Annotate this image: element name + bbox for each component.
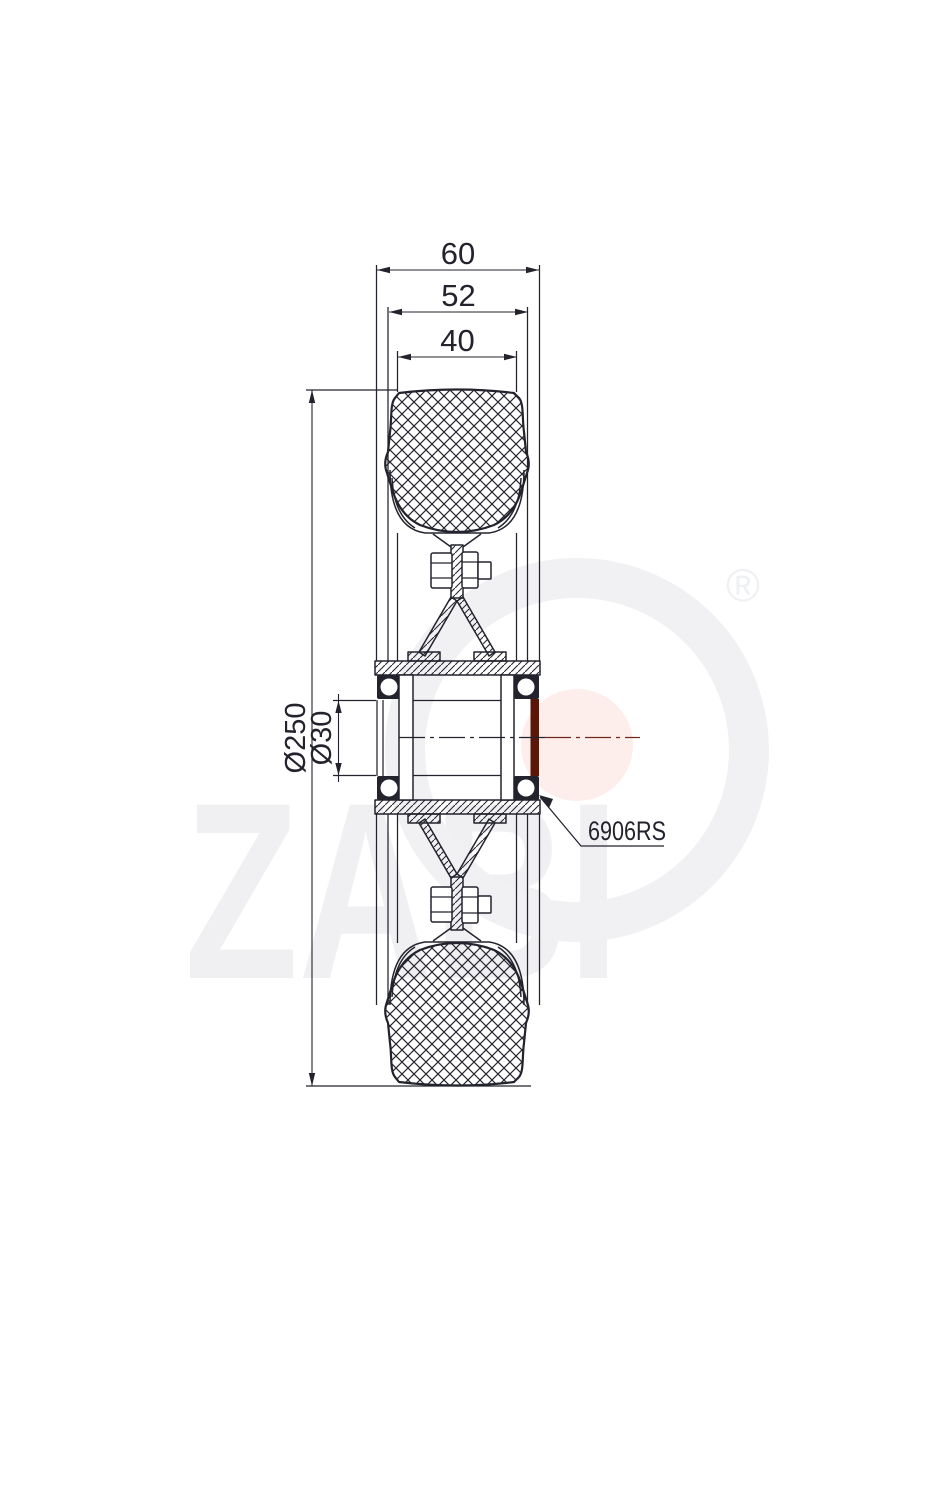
spoke-foot-top-left bbox=[408, 652, 440, 661]
tire-bottom-section bbox=[385, 943, 529, 1086]
bearing-ball-bottom-right bbox=[518, 780, 535, 797]
dim-hub-width-label: 60 bbox=[441, 236, 475, 271]
dimension-40: 40 bbox=[398, 323, 517, 360]
spoke-foot-top-right bbox=[474, 652, 506, 661]
bearing-label: 6906RS bbox=[588, 816, 666, 846]
hub-tube-wall-bottom bbox=[375, 800, 540, 814]
bolt-end-top bbox=[478, 562, 491, 579]
bearing-ball-top-left bbox=[381, 679, 398, 696]
tire-top-section bbox=[385, 390, 529, 533]
dimension-52: 52 bbox=[389, 278, 528, 315]
hub-tube-wall-top bbox=[375, 661, 540, 675]
bolt-nut-top bbox=[462, 552, 478, 588]
dim-tread-width-label: 40 bbox=[440, 323, 474, 358]
bolt-head-bottom bbox=[431, 887, 452, 922]
wheel-technical-drawing: ZABI ® 60 52 40 Ø250 bbox=[0, 0, 936, 1492]
spoke-foot-bottom-right bbox=[474, 814, 506, 823]
rim-weld-strip-bottom bbox=[451, 877, 463, 930]
bearing-ball-bottom-left bbox=[381, 780, 398, 797]
bearing-ball-top-right bbox=[518, 679, 535, 696]
bolt-end-bottom bbox=[478, 896, 491, 913]
rim-weld-strip-top bbox=[451, 545, 463, 598]
bolt-head-top bbox=[431, 553, 452, 588]
registered-trademark-icon: ® bbox=[726, 559, 760, 611]
dimension-60: 60 bbox=[377, 236, 539, 273]
bolt-nut-bottom bbox=[462, 887, 478, 923]
spoke-foot-bottom-left bbox=[408, 814, 440, 823]
dim-rim-width-label: 52 bbox=[441, 278, 475, 313]
dim-bore-diameter-label: Ø30 bbox=[306, 711, 338, 766]
